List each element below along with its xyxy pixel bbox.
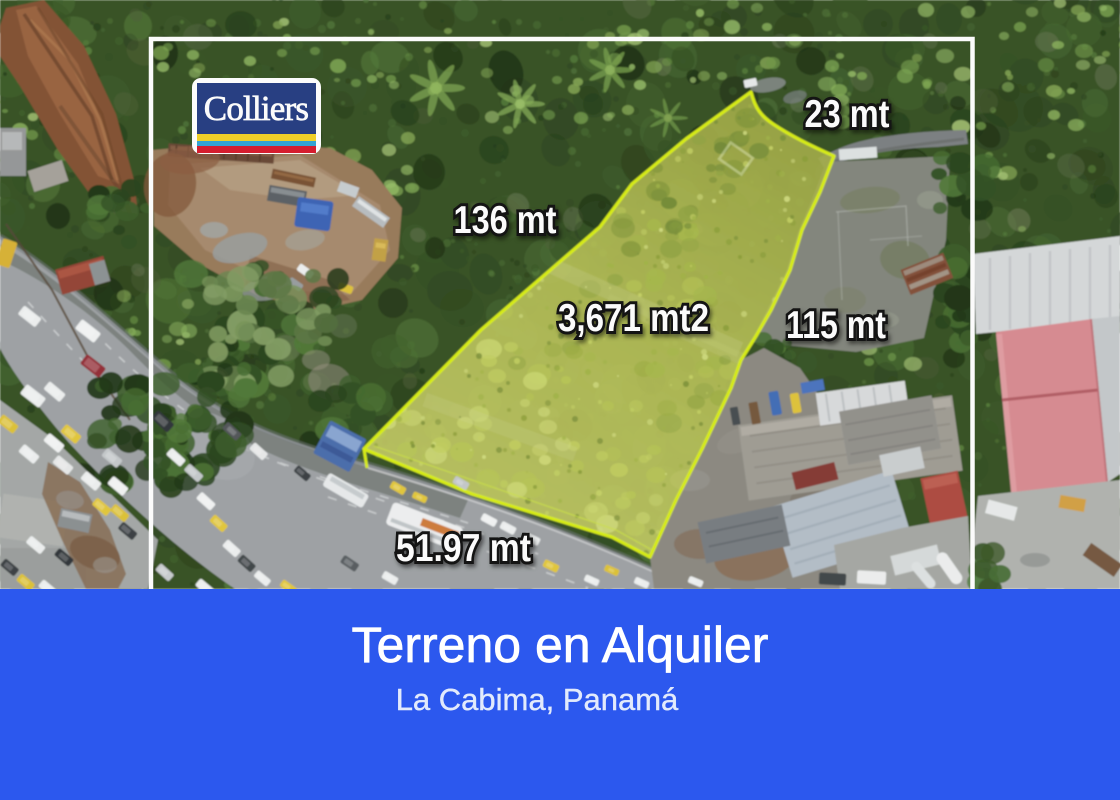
svg-text:3,671 mt2: 3,671 mt2 <box>558 297 709 340</box>
svg-text:23 mt: 23 mt <box>805 93 890 136</box>
svg-text:51.97 mt: 51.97 mt <box>396 527 531 570</box>
svg-text:136 mt: 136 mt <box>454 199 557 242</box>
svg-text:Colliers: Colliers <box>204 89 309 128</box>
svg-text:115 mt: 115 mt <box>786 304 886 347</box>
